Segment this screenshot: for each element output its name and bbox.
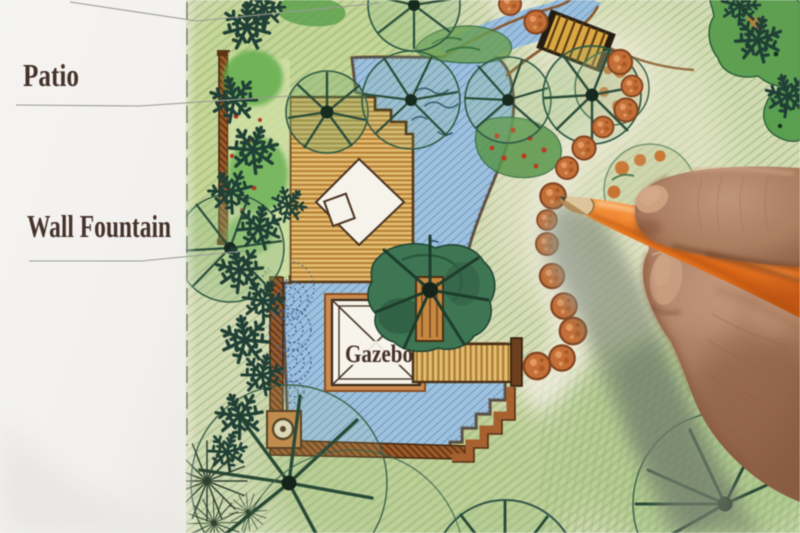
svg-text:Patio: Patio bbox=[23, 57, 79, 93]
svg-text:Wall Fountain: Wall Fountain bbox=[27, 208, 171, 244]
